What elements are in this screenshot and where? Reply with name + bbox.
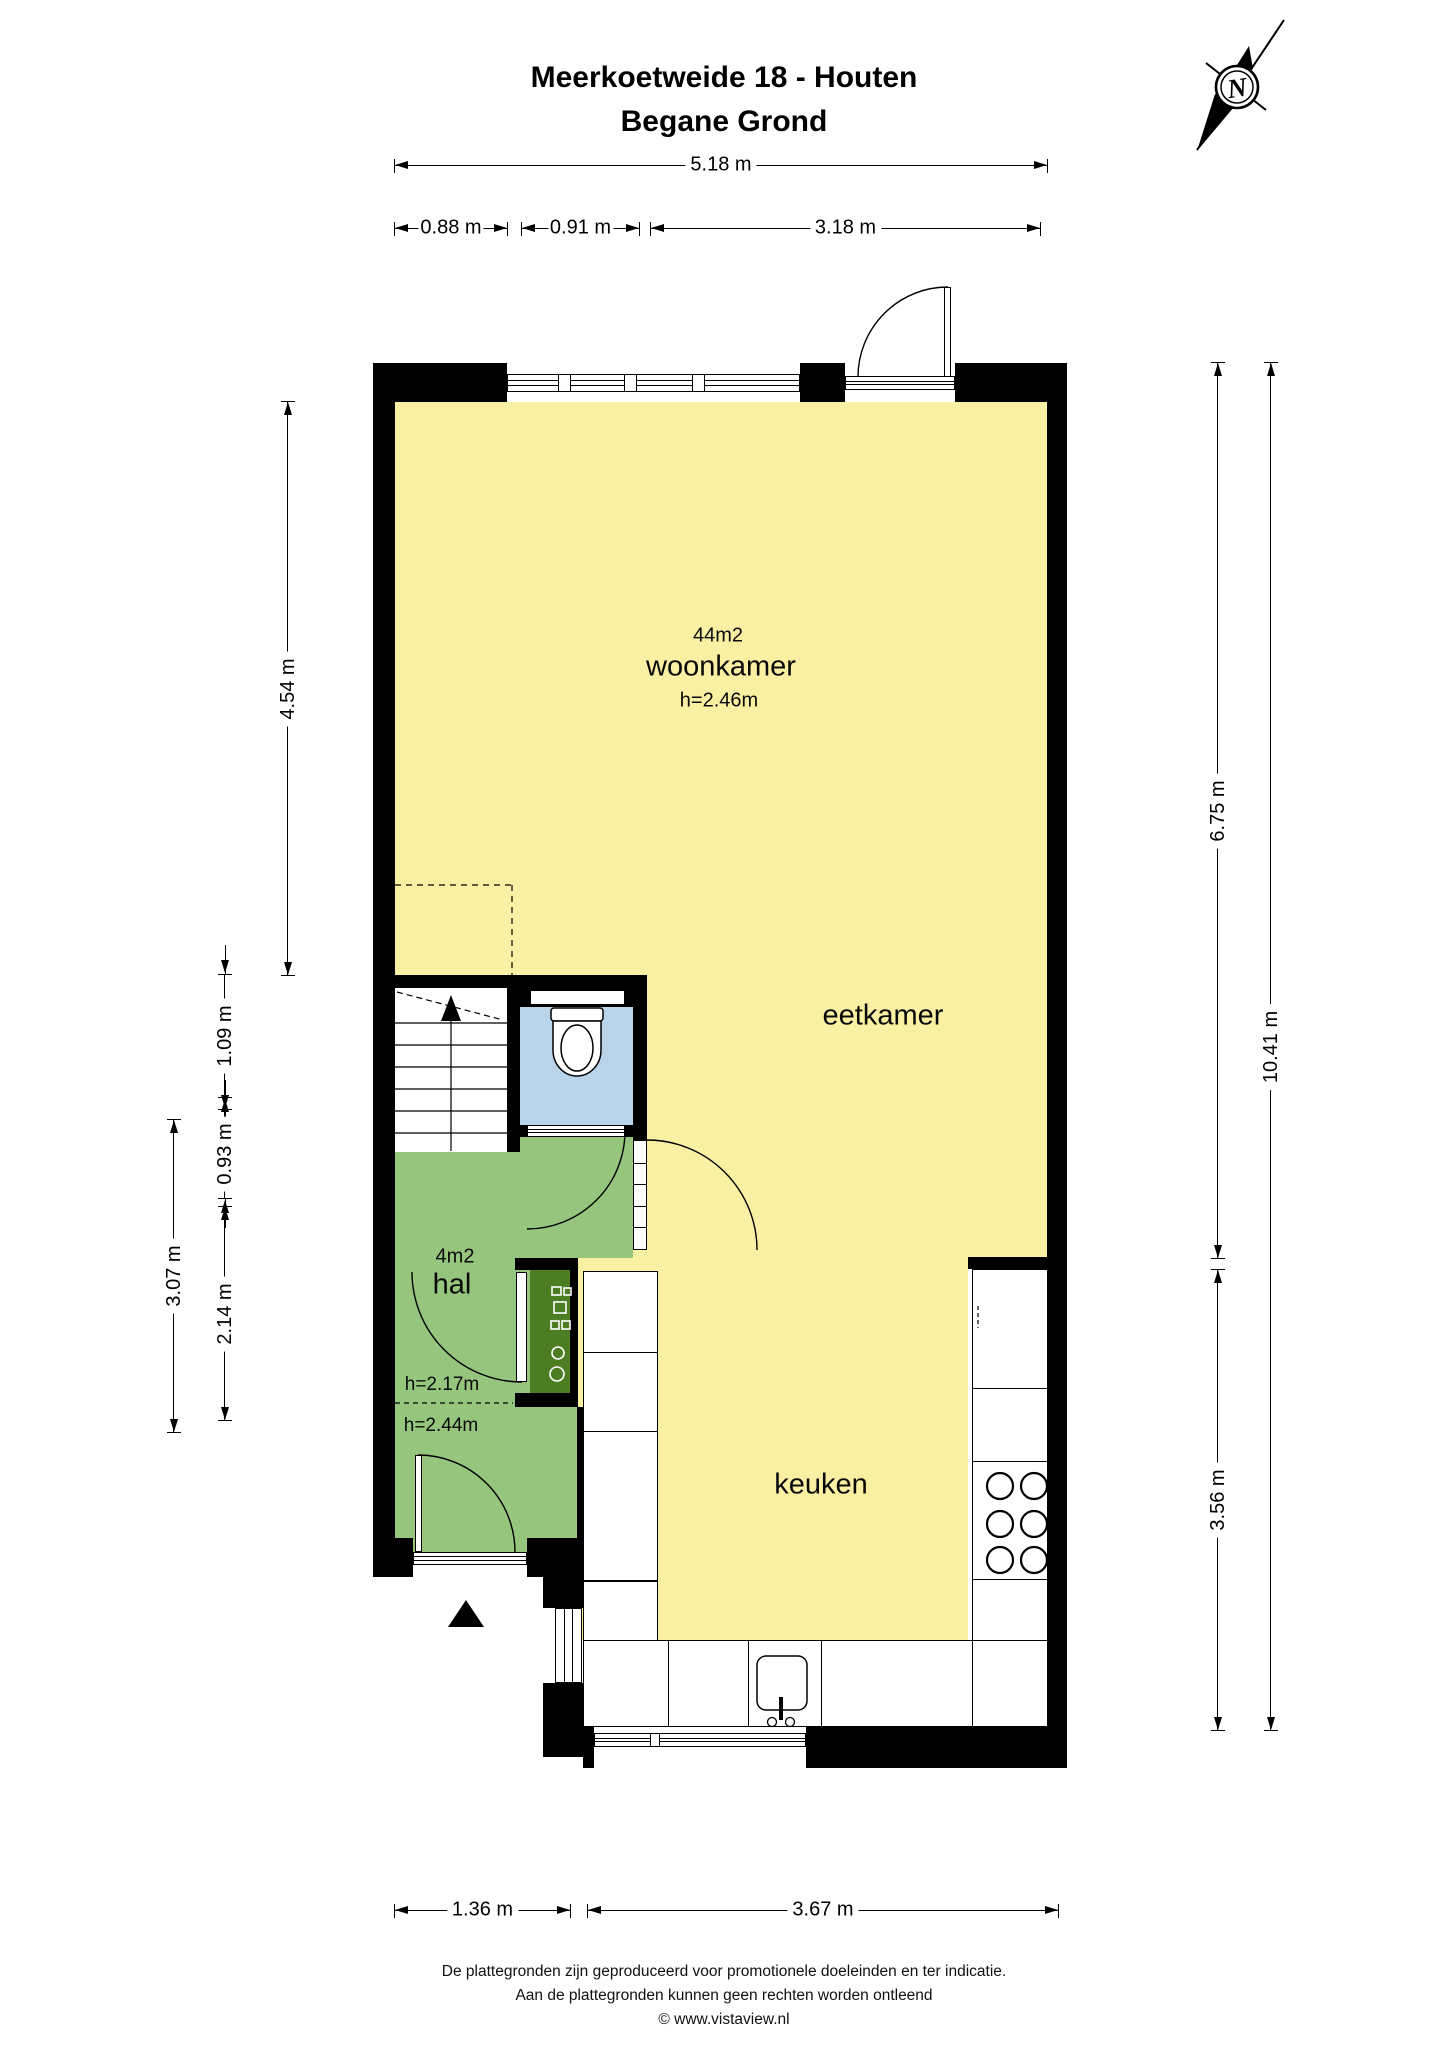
window-bottom — [594, 1733, 806, 1747]
dim-top-total: 5.18 m — [395, 165, 1047, 166]
wall-top-left — [373, 363, 507, 402]
toilet-window — [530, 990, 625, 1005]
woonkamer-label: woonkamer — [646, 651, 796, 684]
footer-copyright: © www.vistaview.nl — [0, 2008, 1448, 2032]
meterkast-door-leaf — [516, 1272, 527, 1382]
entrance-arrow-icon — [448, 1600, 484, 1627]
kitchen-cabinet — [972, 1269, 1048, 1389]
wall-front-left — [373, 1538, 413, 1577]
dim-right-a: 6.75 m — [1217, 363, 1218, 1258]
kitchen-counter — [668, 1640, 749, 1727]
kitchen-cabinet — [972, 1640, 1048, 1727]
wall-front-right — [527, 1538, 583, 1577]
terrace-door-arc — [858, 287, 948, 377]
footer-line-2: Aan de plattegronden kunnen geen rechten… — [0, 1984, 1448, 2008]
wall-toilet-eetkamer — [633, 975, 647, 1140]
window-keuken-side — [555, 1608, 582, 1683]
wall-keuken-left-upper — [543, 1577, 583, 1608]
footer-disclaimer: De plattegronden zijn geproduceerd voor … — [0, 1960, 1448, 2032]
window-top — [507, 374, 800, 392]
stairs-room — [395, 988, 507, 1152]
kitchen-counter — [821, 1640, 973, 1727]
kitchen-counter-hob — [972, 1461, 1048, 1580]
hal-area-label: 4m2 — [436, 1246, 475, 1269]
dim-top-a: 0.88 m — [395, 228, 507, 229]
dim-left-hal-total: 3.07 m — [173, 1120, 174, 1432]
dim-left-a: 1.09 m — [224, 975, 225, 1097]
dim-right-b: 3.56 m — [1217, 1270, 1218, 1730]
footer-line-1: De plattegronden zijn geproduceerd voor … — [0, 1960, 1448, 1984]
wall-right — [1047, 363, 1067, 1768]
wall-toilet-bottom-right — [625, 1125, 647, 1137]
wall-hal-keuken — [577, 1407, 583, 1538]
kitchen-cabinet — [583, 1352, 658, 1432]
toilet-room — [520, 1007, 633, 1125]
page-title: Meerkoetweide 18 - Houten Begane Grond — [0, 56, 1448, 144]
wall-bottom — [812, 1726, 1067, 1768]
hal-floor-upper — [395, 1137, 633, 1258]
wall-top-pier — [800, 363, 845, 402]
kitchen-cabinet — [583, 1431, 658, 1581]
hal-label: hal — [433, 1269, 472, 1302]
wall-bottom-pier-mid — [806, 1726, 812, 1768]
wall-keuken-eetkamer — [968, 1257, 1047, 1269]
dim-left-b: 0.93 m — [224, 1110, 225, 1198]
dim-right-total: 10.41 m — [1270, 363, 1271, 1730]
kitchen-counter — [583, 1640, 669, 1727]
title-floor: Begane Grond — [0, 100, 1448, 144]
wall-bottom-pier-left — [583, 1726, 594, 1768]
title-address: Meerkoetweide 18 - Houten — [0, 56, 1448, 100]
dim-left-woonkamer: 4.54 m — [287, 402, 288, 975]
wall-meterkast-bottom — [515, 1393, 578, 1407]
kitchen-cabinet — [583, 1271, 658, 1353]
eetkamer-label: eetkamer — [823, 1000, 944, 1033]
wall-meterkast-right — [570, 1258, 578, 1407]
kitchen-cabinet — [972, 1388, 1048, 1462]
kitchen-cabinet — [972, 1579, 1048, 1641]
front-door-leaf — [415, 1455, 422, 1552]
floor-plan-page: Meerkoetweide 18 - Houten Begane Grond — [0, 0, 1448, 2048]
hal-height-lower-label: h=2.44m — [404, 1415, 478, 1437]
kitchen-cabinet — [583, 1581, 658, 1641]
dim-top-c: 3.18 m — [651, 228, 1040, 229]
woonkamer-height-label: h=2.46m — [680, 690, 758, 713]
wall-toilet-bottom-left — [507, 1125, 527, 1137]
wall-meterkast-top — [515, 1258, 578, 1270]
threshold-toilet-door — [527, 1125, 625, 1137]
dim-top-b: 0.91 m — [522, 228, 639, 229]
woonkamer-area-label: 44m2 — [693, 625, 743, 648]
dim-left-hal: 2.14 m — [224, 1207, 225, 1420]
threshold-front-door — [413, 1552, 527, 1565]
wall-left — [373, 363, 395, 1577]
hal-height-upper-label: h=2.17m — [405, 1374, 479, 1396]
glass-door-hal-eetkamer — [633, 1140, 647, 1250]
threshold-terrace-door — [845, 376, 955, 390]
dim-bottom-b: 3.67 m — [588, 1910, 1058, 1911]
wall-woonkamer-bottom — [395, 975, 647, 988]
dim-bottom-a: 1.36 m — [395, 1910, 570, 1911]
meterkast-interior — [530, 1270, 570, 1393]
kitchen-counter-sink — [748, 1640, 822, 1727]
keuken-label: keuken — [774, 1469, 868, 1502]
terrace-door-leaf — [944, 287, 951, 377]
wall-keuken-left-lower — [543, 1683, 583, 1757]
